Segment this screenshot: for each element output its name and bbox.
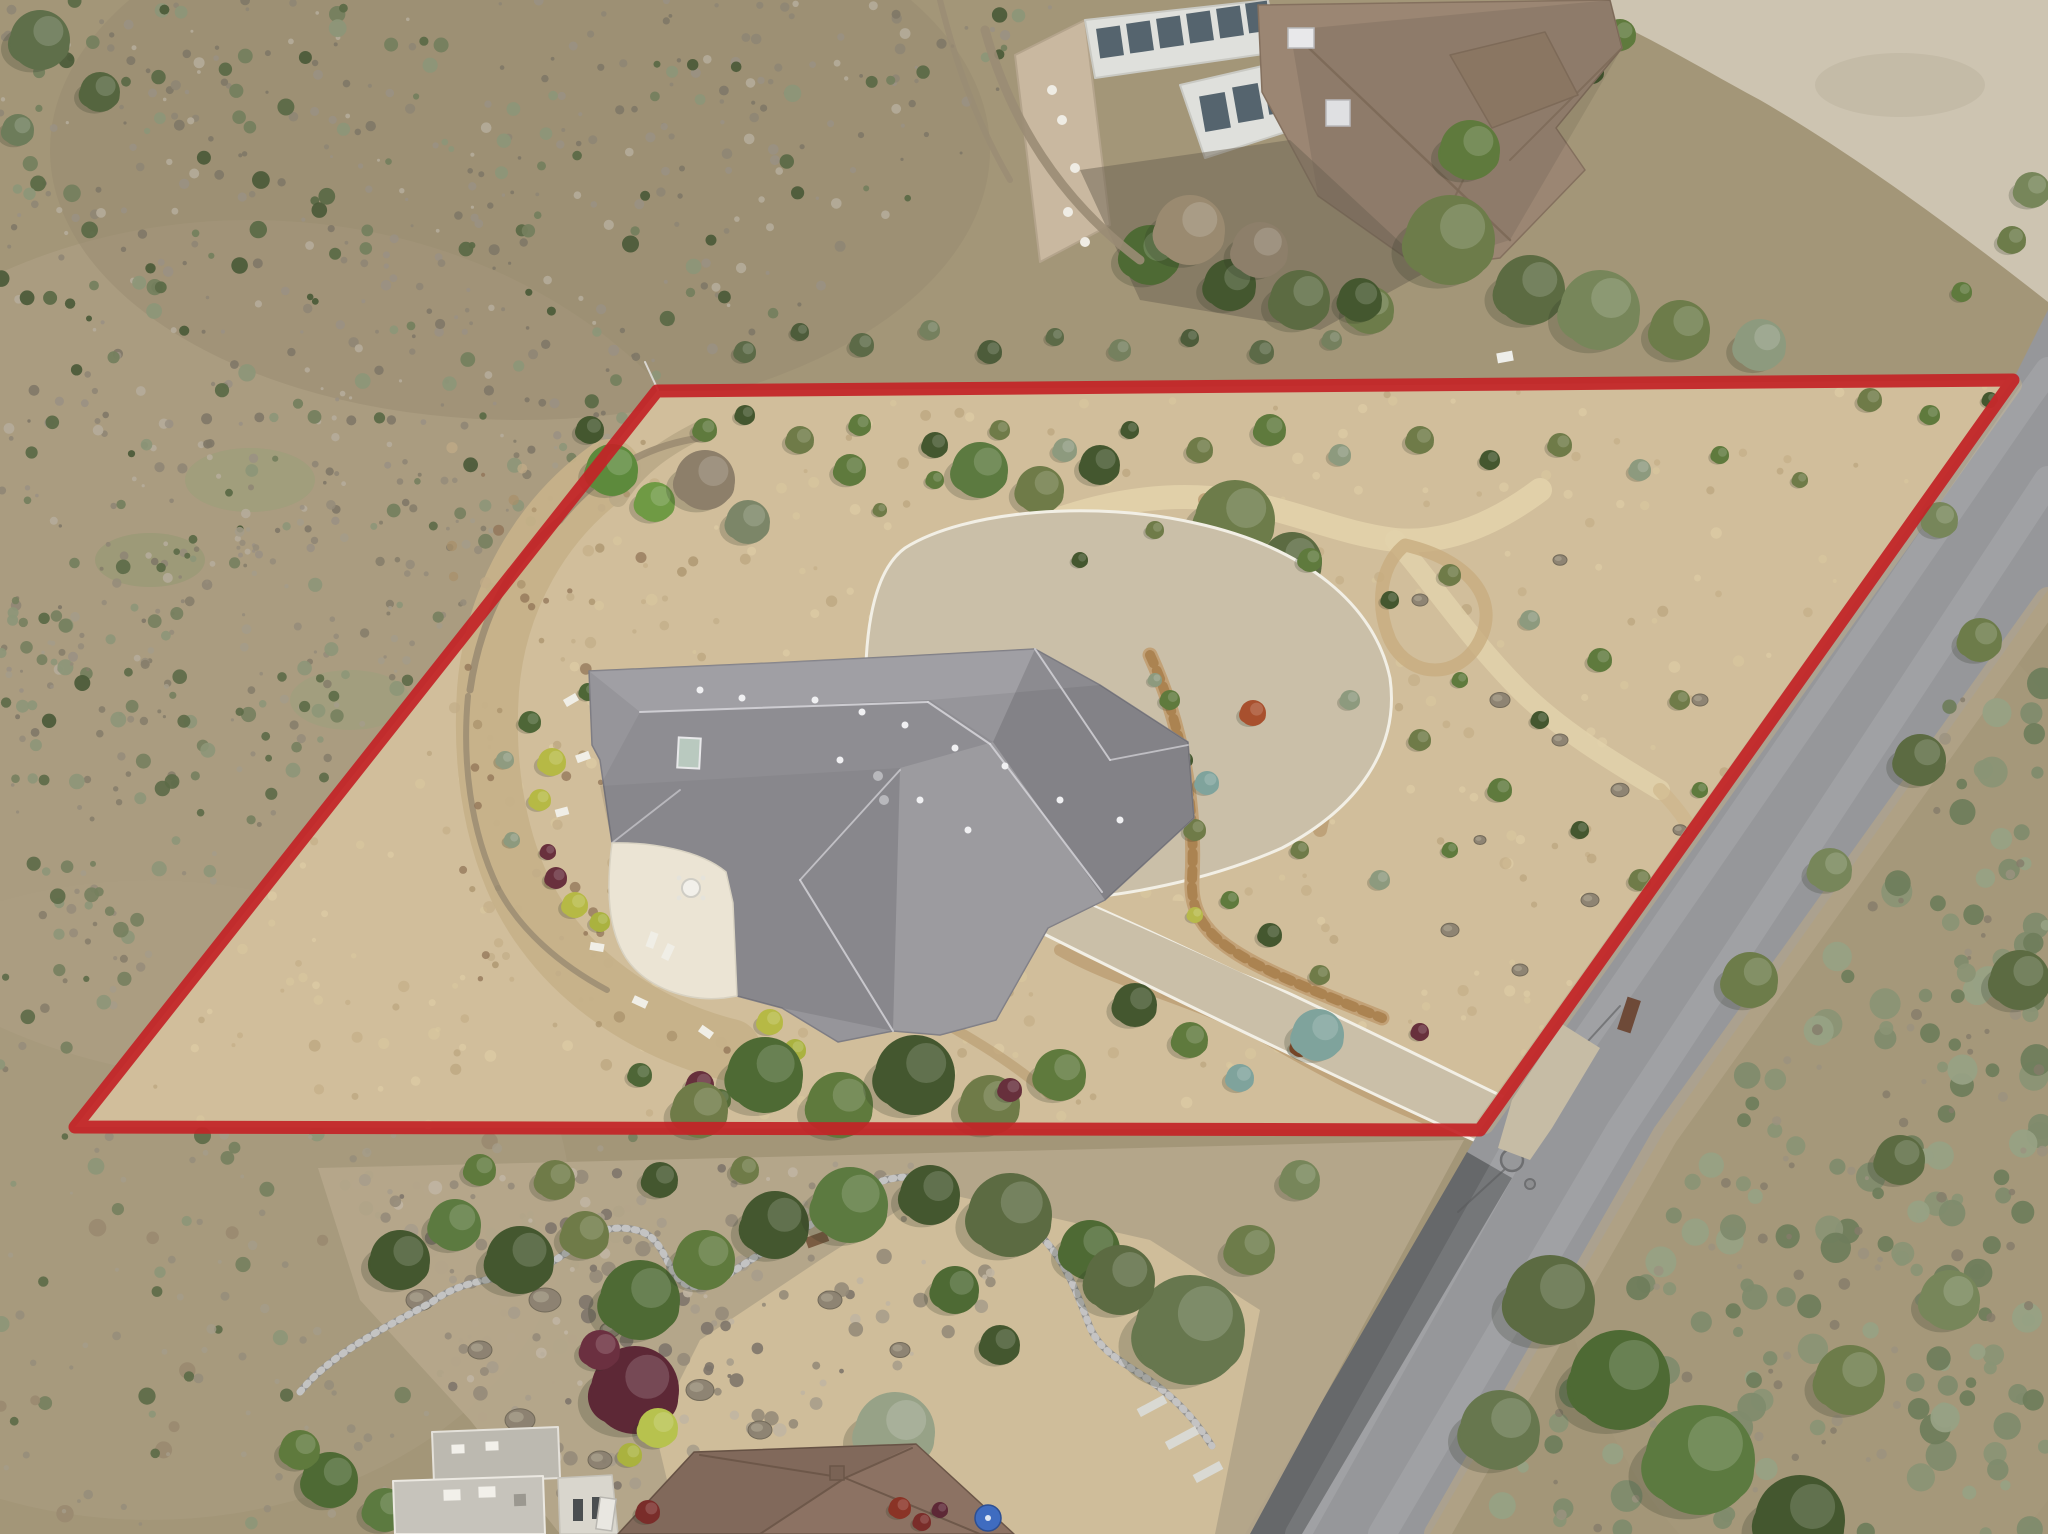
parcel-mottle-dark-dot (1024, 1015, 1035, 1026)
rock-scatter-left-dot (280, 695, 289, 704)
parcel-mottle-light-dot (1733, 655, 1744, 666)
rocks-right-of-road-dot (1891, 1346, 1898, 1353)
parcel-mottle-light-dot (356, 841, 365, 850)
bush-scatter-upper-left-dot (497, 134, 511, 148)
tree-highlight (1557, 435, 1569, 447)
bush-scatter-left-dot (265, 755, 272, 762)
rock-scatter-upper-left-dot (895, 44, 906, 55)
rock-scatter-upper-left-dot (701, 282, 708, 289)
tree-highlight (743, 407, 753, 417)
creek-rocks-dot (942, 1325, 955, 1338)
rock-scatter-upper-left-dot (768, 144, 779, 155)
rock-scatter-upper-left-dot (215, 46, 219, 50)
sunroom-glass-item (1216, 5, 1244, 38)
rock-scatter-upper-left-dot (203, 440, 212, 449)
rock-scatter-bottom-left-dot (8, 1252, 13, 1257)
parcel-mottle-light-dot (808, 477, 819, 488)
creek-rocks-dot (613, 1481, 622, 1490)
rock-scatter-upper-left-dot (148, 88, 157, 97)
parcel-mottle-light-dot (1354, 486, 1363, 495)
bush-scatter-upper-left-dot (572, 151, 582, 161)
rock-scatter-upper-left-dot (780, 2, 789, 11)
rock-scatter-left-dot (514, 452, 520, 458)
rock-scatter-bottom-left-dot (362, 1148, 371, 1157)
bush-scatter-upper-left-dot (460, 352, 475, 367)
roof-skylights-item (485, 1441, 498, 1450)
rock-scatter-bottom-left-dot (166, 1452, 170, 1456)
creek-rocks-dot (629, 1478, 641, 1490)
tree-highlight (96, 76, 116, 96)
scrub-right-of-road-dot (1862, 1322, 1878, 1338)
rock-scatter-upper-left-dot (265, 50, 271, 56)
rock-scatter-bottom-left-dot (299, 1336, 306, 1343)
creek-rocks-dot (657, 1218, 667, 1228)
rock-scatter-left-dot (47, 640, 52, 645)
scrub-right-of-road-dot (1966, 1377, 1977, 1388)
creek-rocks-dot (654, 1230, 660, 1236)
rock-scatter-upper-left-dot (312, 60, 318, 66)
mulch-rocks-dot (567, 588, 572, 593)
rock-scatter-upper-left-dot (421, 419, 427, 425)
parcel-mottle-dark-dot (1029, 992, 1034, 997)
creek-rocks-dot (552, 1317, 560, 1325)
rock-scatter-bottom-left-dot (194, 1374, 204, 1384)
creek-rocks-dot (545, 1222, 557, 1234)
bush-scatter-upper-left-dot (768, 308, 779, 319)
rock-scatter-left-dot (409, 504, 417, 512)
bush-scatter-left-dot (2, 974, 9, 981)
mulch-rocks-dot (471, 763, 480, 772)
parcel-mottle-light-dot (1079, 399, 1089, 409)
parcel-mottle-dark-dot (1443, 721, 1451, 729)
scrub-right-of-road-dot (1919, 989, 1932, 1002)
rock-scatter-upper-left-dot (508, 262, 511, 265)
rock-scatter-bottom-left-dot (390, 1434, 394, 1438)
scrub-right-of-road-dot (1951, 989, 1965, 1003)
bush-scatter-left-dot (429, 522, 438, 531)
rocks-right-of-road-dot (1556, 1510, 1567, 1521)
bush-scatter-left-dot (113, 922, 129, 938)
rock-scatter-upper-left-dot (56, 207, 62, 213)
flat-roof-building (432, 1427, 560, 1483)
creek-rocks-dot (801, 1391, 806, 1396)
tree-highlight (1578, 823, 1587, 832)
rock-scatter-upper-left-dot (749, 113, 759, 123)
rock-scatter-upper-left-dot (714, 3, 718, 7)
bush-scatter-upper-left-dot (534, 211, 542, 219)
rock-scatter-upper-left-dot (470, 153, 474, 157)
rock-scatter-bottom-left-dot (275, 1379, 280, 1384)
bush-scatter-upper-left-dot (731, 62, 742, 73)
rock-scatter-upper-left-dot (454, 211, 463, 220)
rock-scatter-left-dot (271, 810, 277, 816)
rock-scatter-upper-left-dot (171, 80, 181, 90)
rock-scatter-left-dot (360, 628, 369, 637)
bush-scatter-left-dot (297, 661, 312, 676)
rock-scatter-bottom-left-dot (77, 1499, 81, 1503)
rock-scatter-upper-left-dot (816, 281, 826, 291)
bush-scatter-left-dot (191, 771, 200, 780)
bush-scatter-upper-left-dot (448, 146, 454, 152)
tree-highlight (998, 422, 1008, 432)
creek-rocks-dot (773, 1423, 787, 1437)
rocks-right-of-road-dot (1966, 1034, 1971, 1039)
rock-scatter-upper-left-dot (405, 104, 415, 114)
rock-scatter-upper-left-dot (361, 299, 365, 303)
rock-scatter-upper-left-dot (746, 78, 756, 88)
rock-scatter-upper-left-dot (770, 155, 780, 165)
rock-scatter-upper-left-dot (727, 304, 731, 308)
bush-scatter-upper-left-dot (159, 5, 169, 15)
rock-scatter-upper-left-dot (758, 196, 764, 202)
parcel-mottle-dark-dot (1090, 1093, 1097, 1100)
bush-scatter-upper-left-dot (337, 123, 350, 136)
rocks-right-of-road-dot (1854, 1227, 1862, 1235)
rock-scatter-bottom-left-dot (492, 1143, 502, 1153)
bush-scatter-left-dot (134, 792, 146, 804)
rock-scatter-upper-left-dot (151, 558, 159, 566)
bush-scatter-upper-left-dot (121, 77, 131, 87)
rock-scatter-upper-left-dot (206, 296, 210, 300)
parcel-mottle-light-dot (613, 536, 622, 545)
mulch-rocks-dot (595, 543, 604, 552)
bush-scatter-upper-left-dot (666, 66, 678, 78)
scrub-right-of-road-dot (1995, 1188, 2011, 1204)
bush-scatter-upper-left-dot (592, 327, 601, 336)
rock-scatter-left-dot (250, 751, 255, 756)
rock-scatter-upper-left-dot (210, 561, 216, 567)
rock-scatter-left-dot (418, 473, 422, 477)
rocks-right-of-road-dot (1936, 1192, 1947, 1203)
scrub-right-of-road-dot (1734, 1062, 1761, 1089)
bush-scatter-upper-left-dot (132, 276, 146, 290)
scrub-right-of-road-dot (1930, 895, 1946, 911)
bush-scatter-upper-left-dot (86, 35, 100, 49)
rock-scatter-upper-left-dot (461, 422, 469, 430)
rock-scatter-bottom-left-dot (115, 1268, 119, 1272)
parcel-mottle-dark-dot (443, 827, 451, 835)
rock-scatter-upper-left-dot (632, 353, 640, 361)
tree-highlight (757, 1045, 795, 1083)
rock-scatter-upper-left-dot (305, 367, 310, 372)
bush-scatter-left-dot (110, 712, 126, 728)
parcel-mottle-light-dot (847, 588, 854, 595)
boulder-highlight (1493, 695, 1503, 702)
creek-rocks-dot (833, 1162, 839, 1168)
parcel-mottle-light-dot (1694, 575, 1701, 582)
bush-scatter-upper-left-dot (238, 364, 255, 381)
boulder-highlight (509, 1412, 524, 1423)
rock-scatter-bottom-left-dot (248, 1241, 258, 1251)
bush-scatter-left-dot (454, 507, 466, 519)
bush-scatter-upper-left-dot (329, 248, 341, 260)
parcel-mottle-light-dot (459, 1044, 466, 1051)
boulder-highlight (1694, 696, 1702, 702)
rock-scatter-left-dot (242, 613, 245, 616)
rock-scatter-bottom-left-dot (354, 1442, 363, 1451)
tree-highlight (1591, 278, 1631, 318)
parcel-mottle-dark-dot (798, 1028, 808, 1038)
rock-scatter-left-dot (11, 783, 15, 787)
rock-scatter-upper-left-dot (183, 261, 187, 265)
scrub-right-of-road-dot (1957, 963, 1976, 982)
bush-scatter-upper-left-dot (318, 188, 335, 205)
rock-scatter-upper-left-dot (990, 27, 995, 32)
roof-vents-dot (952, 745, 959, 752)
bush-scatter-left-dot (83, 976, 89, 982)
rock-scatter-upper-left-dot (343, 80, 351, 88)
parcel-mottle-dark-dot (1463, 727, 1474, 738)
bush-scatter-bottom-left-dot (10, 1417, 19, 1426)
rock-scatter-upper-left-dot (1000, 30, 1010, 40)
rocks-right-of-road-dot (1758, 1234, 1768, 1244)
rock-scatter-upper-left-dot (757, 77, 764, 84)
rock-scatter-upper-left-dot (827, 120, 834, 127)
rock-scatter-bottom-left-dot (168, 1256, 176, 1264)
parcel-mottle-light-dot (646, 594, 658, 606)
tree-highlight (33, 16, 63, 46)
bush-scatter-left-dot (148, 614, 162, 628)
parcel-mottle-dark-dot (450, 1064, 461, 1075)
tree-highlight (1312, 1014, 1338, 1040)
tree-highlight (1053, 330, 1062, 339)
mulch-rocks-dot (473, 720, 482, 729)
rock-scatter-left-dot (237, 766, 243, 772)
rocks-right-of-road-dot (2037, 1146, 2048, 1157)
rock-scatter-left-dot (359, 721, 365, 727)
rock-scatter-upper-left-dot (725, 167, 732, 174)
bush-scatter-upper-left-dot (43, 291, 57, 305)
parcel-mottle-dark-dot (813, 566, 817, 570)
bush-scatter-left-dot (42, 867, 51, 876)
parcel-mottle-dark-dot (1627, 618, 1635, 626)
rocks-right-of-road-dot (1593, 1524, 1602, 1533)
bush-scatter-upper-left-dot (175, 6, 188, 19)
tree-highlight (1609, 1340, 1659, 1390)
rock-scatter-upper-left-dot (19, 688, 24, 693)
bush-scatter-bottom-left-dot (226, 1226, 239, 1239)
parcel-mottle-dark-dot (494, 938, 503, 947)
rock-scatter-upper-left-dot (591, 201, 598, 208)
scrub-right-of-road-dot (1938, 1376, 1958, 1396)
rock-scatter-upper-left-dot (288, 39, 294, 45)
bush-scatter-upper-left-dot (42, 714, 56, 728)
rock-scatter-upper-left-dot (474, 219, 483, 228)
parcel-mottle-dark-dot (1245, 887, 1253, 895)
mulch-rocks-dot (449, 572, 458, 581)
rock-scatter-upper-left-dot (50, 517, 58, 525)
bush-scatter-left-dot (11, 774, 20, 783)
rock-scatter-bottom-left-dot (62, 1509, 66, 1513)
bush-scatter-left-dot (16, 700, 29, 713)
tree-highlight (1204, 773, 1216, 785)
creek-rocks-dot (820, 1380, 827, 1387)
bush-scatter-left-dot (19, 618, 28, 627)
rock-scatter-upper-left-dot (541, 340, 550, 349)
rock-scatter-upper-left-dot (596, 304, 606, 314)
rocks-right-of-road-dot (1768, 1369, 1773, 1374)
rock-scatter-upper-left-dot (238, 553, 243, 558)
rock-scatter-upper-left-dot (556, 140, 564, 148)
rock-scatter-upper-left-dot (163, 541, 168, 546)
creek-rocks-dot (910, 1352, 914, 1356)
scrub-right-of-road-dot (1626, 1276, 1650, 1300)
rocks-right-of-road-dot (1964, 949, 1971, 956)
rock-scatter-left-dot (404, 570, 411, 577)
rock-scatter-upper-left-dot (311, 537, 318, 544)
rock-scatter-left-dot (185, 596, 195, 606)
rock-scatter-upper-left-dot (136, 386, 146, 396)
rock-scatter-upper-left-dot (454, 315, 458, 319)
rocks-right-of-road-dot (1868, 901, 1878, 911)
rocks-right-of-road-dot (1760, 1182, 1768, 1190)
bush-scatter-upper-left-dot (622, 236, 639, 253)
mulch-rocks-dot (469, 886, 475, 892)
bush-scatter-bottom-left-dot (221, 1151, 235, 1165)
tree-highlight (743, 504, 765, 526)
tree-highlight (1754, 324, 1780, 350)
rock-scatter-left-dot (145, 951, 152, 958)
rock-scatter-upper-left-dot (277, 178, 285, 186)
rock-scatter-upper-left-dot (207, 454, 213, 460)
rock-scatter-left-dot (140, 717, 148, 725)
creek-rocks-dot (839, 1369, 844, 1374)
creek-rocks-dot (714, 1388, 722, 1396)
rock-scatter-upper-left-dot (331, 517, 339, 525)
rock-scatter-left-dot (210, 878, 217, 885)
creek-rocks-dot (459, 1344, 469, 1354)
rocks-right-of-road-dot (1876, 1449, 1886, 1459)
boulder-highlight (591, 1453, 603, 1461)
mulch-rocks-dot (520, 593, 529, 602)
creek-rocks-dot (450, 1180, 459, 1189)
rock-scatter-left-dot (194, 546, 200, 552)
neighbor-deck-chairs-dot (1057, 115, 1067, 125)
bush-scatter-bottom-left-dot (317, 1235, 328, 1246)
rock-scatter-upper-left-dot (58, 254, 64, 260)
parcel-mottle-light-dot (1497, 640, 1505, 648)
rock-scatter-left-dot (240, 643, 249, 652)
rock-scatter-upper-left-dot (169, 499, 174, 504)
boulder-highlight (471, 1343, 483, 1351)
boulder-highlight (1613, 785, 1622, 791)
bush-scatter-left-dot (8, 607, 19, 618)
bush-scatter-left-dot (61, 1042, 73, 1054)
rocks-right-of-road-dot (1754, 1432, 1763, 1441)
parcel-mottle-light-dot (810, 609, 819, 618)
scrub-right-of-road-dot (1748, 1189, 1763, 1204)
rock-scatter-upper-left-dot (171, 327, 177, 333)
mulch-rocks-dot (465, 664, 472, 671)
creek-rocks-dot (448, 1382, 457, 1391)
bush-scatter-upper-left-dot (13, 184, 23, 194)
rock-scatter-upper-left-dot (106, 542, 111, 547)
rock-scatter-bottom-left-dot (597, 1145, 603, 1151)
scrub-right-of-road-dot (1942, 700, 1956, 714)
rock-scatter-upper-left-dot (677, 193, 682, 198)
parcel-mottle-dark-dot (1783, 455, 1791, 463)
roof-vents-dot (812, 697, 819, 704)
bush-scatter-upper-left-dot (219, 62, 232, 75)
scrub-right-of-road-dot (1920, 1023, 1940, 1043)
rock-scatter-bottom-left-dot (201, 1347, 207, 1353)
parcel-mottle-dark-dot (957, 1048, 967, 1058)
parcel-mottle-dark-dot (1437, 837, 1445, 845)
rock-scatter-upper-left-dot (466, 288, 470, 292)
scrub-right-of-road-dot (1974, 760, 1993, 779)
bush-scatter-left-dot (277, 672, 287, 682)
rock-scatter-upper-left-dot (246, 7, 250, 11)
rock-scatter-upper-left-dot (965, 26, 969, 30)
tree-highlight (1153, 674, 1160, 681)
rocks-right-of-road-dot (1654, 1284, 1660, 1290)
parcel-mottle-light-dot (890, 400, 897, 407)
rocks-right-of-road-dot (1939, 733, 1951, 745)
tree-highlight (637, 1065, 649, 1077)
rock-scatter-left-dot (78, 643, 84, 649)
tree-highlight (549, 751, 563, 765)
rock-scatter-upper-left-dot (900, 158, 903, 161)
rocks-right-of-road-dot (1830, 1427, 1837, 1434)
bush-scatter-bottom-left-dot (245, 1517, 258, 1530)
rock-scatter-bottom-left-dot (282, 1261, 289, 1268)
tree-highlight (1307, 550, 1319, 562)
bush-scatter-upper-left-dot (26, 446, 38, 458)
rock-scatter-upper-left-dot (712, 283, 721, 292)
bush-scatter-upper-left-dot (89, 281, 99, 291)
rock-scatter-upper-left-dot (121, 247, 126, 252)
bush-scatter-upper-left-dot (459, 242, 474, 257)
rock-scatter-upper-left-dot (377, 159, 380, 162)
bush-scatter-left-dot (59, 619, 73, 633)
rocks-right-of-road-dot (1998, 1092, 2008, 1102)
scrub-right-of-road-dot (1949, 1038, 1961, 1050)
bush-scatter-upper-left-dot (434, 38, 449, 53)
rock-scatter-upper-left-dot (305, 525, 312, 532)
rock-scatter-upper-left-dot (634, 199, 644, 209)
rocks-right-of-road-dot (1898, 898, 1904, 904)
rock-scatter-upper-left-dot (936, 39, 946, 49)
creek-rocks-dot (705, 1362, 714, 1371)
parcel-mottle-light-dot (351, 953, 357, 959)
mulch-rocks-dot (571, 639, 576, 644)
rock-scatter-left-dot (164, 684, 169, 689)
bush-scatter-upper-left-dot (495, 166, 508, 179)
scrub-right-of-road-dot (1736, 1176, 1751, 1191)
rock-scatter-bottom-left-dot (206, 1324, 216, 1334)
scrub-right-of-road-dot (2023, 1389, 2044, 1410)
bush-scatter-upper-left-dot (610, 374, 622, 386)
neighbor-deck-chairs-dot (1080, 237, 1090, 247)
rock-scatter-upper-left-dot (661, 123, 668, 130)
scrub-right-of-road-dot (2020, 702, 2042, 724)
tree-highlight (1867, 390, 1879, 402)
rock-scatter-upper-left-dot (549, 398, 559, 408)
parcel-mottle-dark-dot (1516, 390, 1521, 395)
parcel-mottle-light-dot (776, 483, 787, 494)
bush-scatter-upper-left-dot (116, 500, 125, 509)
boulder-highlight (1554, 736, 1562, 742)
parcel-mottle-light-dot (1711, 527, 1722, 538)
parcel-mottle-dark-dot (1076, 1099, 1081, 1104)
rock-scatter-left-dot (378, 657, 385, 664)
parcel-mottle-dark-dot (1423, 501, 1430, 508)
bush-scatter-upper-left-dot (293, 399, 303, 409)
rock-scatter-upper-left-dot (484, 385, 494, 395)
rock-scatter-left-dot (86, 668, 89, 671)
tree-highlight (1193, 821, 1204, 832)
rock-scatter-upper-left-dot (578, 296, 583, 301)
